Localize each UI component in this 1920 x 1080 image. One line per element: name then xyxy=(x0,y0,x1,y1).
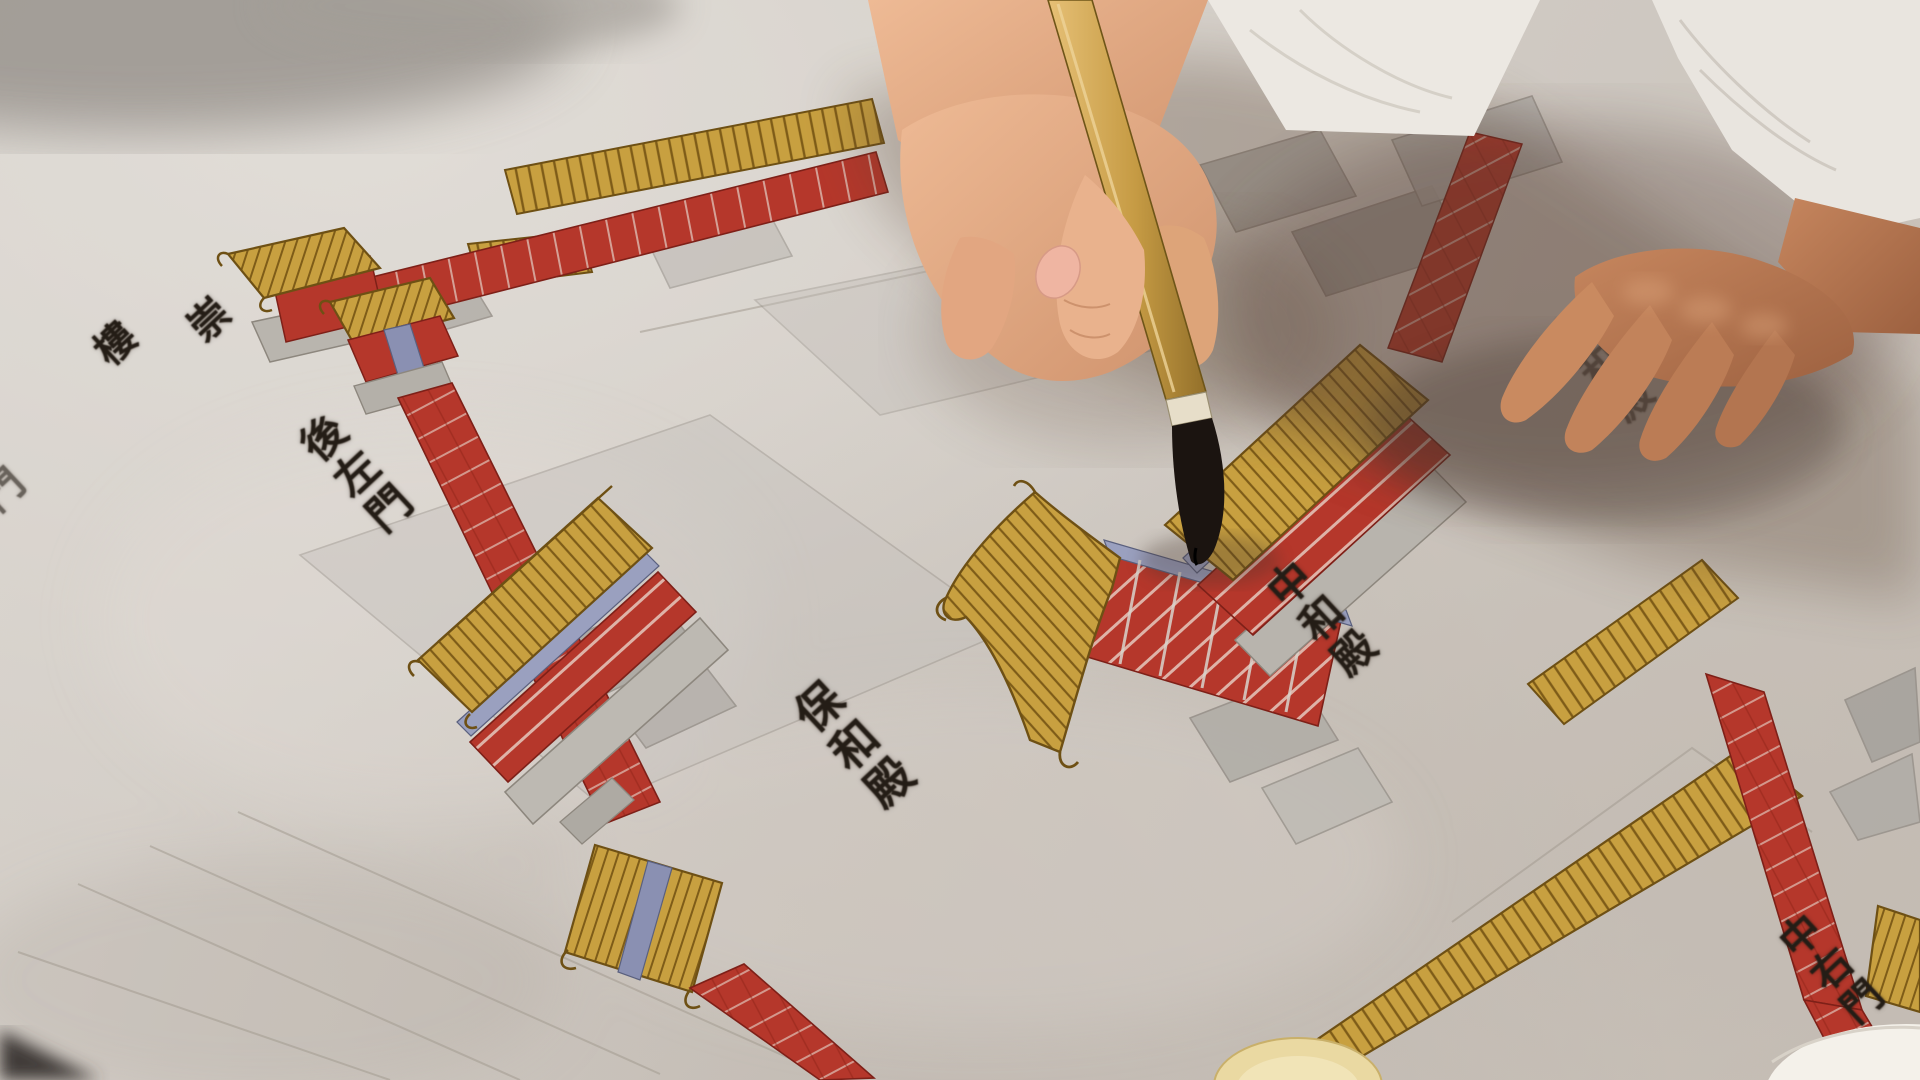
table-edge-corner xyxy=(0,1030,100,1080)
white-dish xyxy=(1764,1024,1920,1080)
hands-and-shadows-layer xyxy=(0,0,1920,1080)
photograph-scene: 保和殿 中和殿 太和殿 後左門 中右門 崇 樓 門 xyxy=(0,0,1920,1080)
yellow-dish xyxy=(1214,1038,1382,1080)
defocused-background-topleft xyxy=(0,0,680,133)
